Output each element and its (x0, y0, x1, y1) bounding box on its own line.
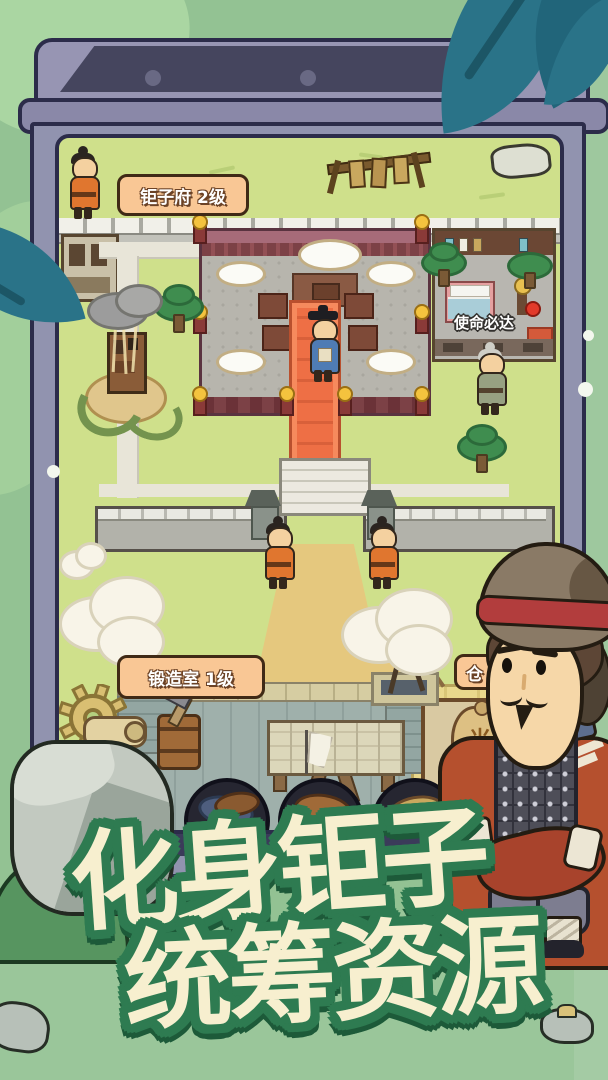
pine-canopy (466, 424, 498, 446)
pillar-finial (337, 388, 351, 414)
leaf-vein (0, 259, 26, 307)
basin-table (216, 349, 266, 375)
pine-canopy (163, 284, 195, 306)
npc-status-text[interactable]: 使命必达 (454, 312, 564, 333)
gold-finial (414, 386, 430, 402)
pillar-finial (414, 388, 428, 414)
rack-cloth (348, 159, 366, 188)
drying-rack (327, 148, 427, 200)
pine-trunk (476, 454, 488, 473)
basin-table (216, 261, 266, 287)
gate-roof (361, 490, 397, 506)
npc-eye-left (502, 658, 512, 673)
barrel-band (160, 727, 198, 731)
banner-pole (305, 730, 308, 774)
gold-finial (192, 214, 208, 230)
bg-dot-1 (47, 465, 60, 478)
barrel (157, 714, 201, 770)
shrine-group (81, 306, 181, 426)
leaf-vein (463, 0, 538, 81)
desk-drawer (312, 283, 340, 301)
juzi-leg (324, 370, 332, 382)
pillar-finial (192, 216, 206, 242)
bed-pillow (450, 285, 490, 297)
grass-streak (479, 192, 505, 200)
pillar-finial (414, 216, 428, 242)
alert-dot (525, 301, 541, 317)
villager-walking (262, 520, 294, 588)
basin-table (366, 349, 416, 375)
mansion-level-badge[interactable]: 钜子府 2级 (117, 174, 249, 216)
gold-finial (279, 386, 295, 402)
pillar-finial (414, 306, 428, 332)
pine-canopy (429, 242, 459, 262)
villager-leg (279, 577, 287, 589)
juzi-sash (318, 348, 332, 362)
pine-tree (457, 424, 505, 470)
page: 使命必达 (0, 0, 608, 1080)
forge-level-badge[interactable]: 锻造室 1级 (117, 655, 265, 699)
speaker-dot-2 (300, 70, 316, 86)
villager-belt (267, 562, 291, 567)
smoke-cloud (115, 284, 163, 318)
pine-tree (421, 242, 465, 284)
juzi-leg (314, 370, 322, 382)
square-table (348, 325, 378, 351)
villager-belt (72, 192, 96, 197)
villager-elder (474, 346, 506, 414)
pillar-finial (279, 388, 293, 414)
villager-leg (74, 207, 82, 219)
oval-table (298, 239, 362, 271)
pine-trunk (524, 272, 536, 289)
shelf-bottle (473, 238, 482, 252)
bg-dot-3 (578, 382, 593, 397)
gold-finial (337, 386, 353, 402)
forge-badge-label: 锻造室 1级 (148, 665, 234, 690)
gold-finial (192, 386, 208, 402)
rack-cloth (392, 156, 409, 185)
elder-belt (479, 388, 503, 393)
speaker-dot-1 (145, 70, 161, 86)
gold-finial (414, 214, 430, 230)
hall-bottom-band (202, 397, 288, 413)
square-table (258, 293, 288, 319)
base-window (443, 343, 463, 352)
npc-eye-right (536, 660, 546, 675)
juzi-hat-knob (318, 305, 328, 313)
banner-flag (307, 731, 333, 769)
villager-walking (366, 520, 398, 588)
hut-window (69, 244, 85, 266)
white-banner (305, 730, 331, 776)
pine-tree (507, 246, 551, 286)
blossom-tree (59, 542, 105, 578)
villager-leg (84, 207, 92, 219)
gold-finial (414, 304, 430, 320)
title-line-2: 统筹资源 (60, 904, 605, 1046)
juzi-character (307, 310, 339, 378)
villager-leg (269, 577, 277, 589)
barrel-band (160, 749, 198, 753)
basin-table (366, 261, 416, 287)
gate-roof (245, 490, 281, 506)
blossom (75, 542, 107, 570)
stone-steps (279, 458, 371, 516)
elder-leg (491, 403, 499, 415)
bg-dot-2 (583, 330, 594, 341)
bench-top (267, 720, 405, 776)
base-window (523, 343, 543, 352)
villager-walking (67, 150, 99, 218)
screen-rock (489, 141, 552, 181)
square-table (344, 293, 374, 319)
elder-leg (481, 403, 489, 415)
villager-belt (371, 562, 395, 567)
square-table (262, 325, 292, 351)
scroll-roll (124, 721, 146, 743)
pine-trunk (438, 269, 450, 287)
pillar-finial (192, 388, 206, 414)
rack-cloth (370, 158, 388, 189)
mansion-badge-label: 钜子府 2级 (140, 183, 226, 208)
